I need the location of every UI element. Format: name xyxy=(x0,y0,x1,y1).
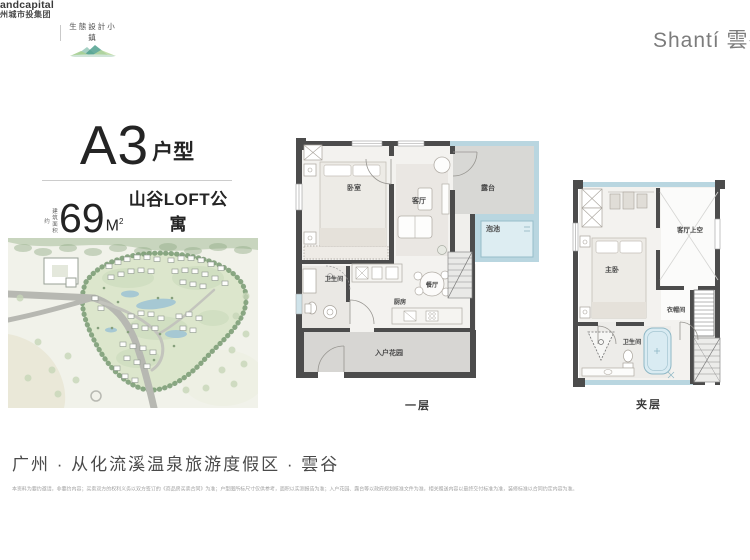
room-label-closet: 衣帽间 xyxy=(667,306,686,314)
room-label-kitchen: 厨房 xyxy=(394,298,406,306)
unit-title-block: A3户型 建筑面积约 69 M2 山谷LOFT公寓 xyxy=(42,118,232,238)
eco-town-logo-text: 生態設計小鎮 xyxy=(67,21,119,43)
room-label-bath: 卫生间 xyxy=(325,275,344,283)
area-tagline: 山谷LOFT公寓 xyxy=(124,185,232,235)
unit-name-suffix: 户型 xyxy=(152,141,194,164)
eco-town-logo: 生態設計小鎮 xyxy=(67,21,119,62)
developer-logo: andcapital 州城市投集团 xyxy=(0,0,54,19)
project-location: 广州 · 从化流溪温泉旅游度假区 · 雲谷 xyxy=(12,450,339,475)
developer-logo-line2: 州城市投集团 xyxy=(0,11,54,19)
bedroom-dresser xyxy=(304,246,388,259)
floor-plan-first: 卧室 客厅 露台 泡池 卫生间 餐厅 厨房 入户花园 xyxy=(292,132,544,384)
room-label-living: 客厅 xyxy=(411,196,426,205)
room-label-pool: 泡池 xyxy=(486,224,500,233)
room-label-garden: 入户花园 xyxy=(374,348,403,357)
room-label-master: 主卧 xyxy=(605,265,619,274)
living-furniture xyxy=(396,157,450,256)
stairs xyxy=(448,252,472,298)
room-label-bath: 卫生间 xyxy=(623,338,642,346)
project-brand-logo: Shantí 雲谷 xyxy=(653,24,750,54)
floor-plan-mezzanine: 主卧 客厅上空 衣帽间 卫生间 xyxy=(568,176,730,392)
closet-wardrobe xyxy=(694,290,714,336)
area-label: 建筑面积约 xyxy=(42,208,58,234)
floor-caption-mezzanine: 夹层 xyxy=(568,396,730,412)
eco-logo-mountain-icon xyxy=(70,43,116,57)
logo-divider xyxy=(60,25,61,41)
terrace-area xyxy=(453,144,539,214)
unit-name-row: A3户型 xyxy=(42,118,232,173)
brochure-page: andcapital 州城市投集团 生態設計小鎮 Shantí 雲谷 A3户型 … xyxy=(0,0,750,560)
area-value: 69 xyxy=(59,199,105,238)
stairs xyxy=(694,338,720,382)
main-building xyxy=(44,258,78,287)
title-divider xyxy=(42,180,232,181)
room-label-terrace: 露台 xyxy=(481,183,495,192)
room-label-void: 客厅上空 xyxy=(676,225,704,234)
floor-caption-first: 一层 xyxy=(292,397,544,413)
room-label-bedroom: 卧室 xyxy=(347,183,361,192)
legal-disclaimer: 本资料为要约邀请，非要约内容；买卖双方的权利义务以双方签订的《商品房买卖合同》为… xyxy=(12,486,632,492)
room-label-dining: 餐厅 xyxy=(426,281,439,289)
site-plan-map xyxy=(8,238,258,408)
unit-name: A3 xyxy=(80,114,149,176)
unit-area-row: 建筑面积约 69 M2 山谷LOFT公寓 xyxy=(42,185,232,238)
area-unit: M2 xyxy=(106,217,124,235)
